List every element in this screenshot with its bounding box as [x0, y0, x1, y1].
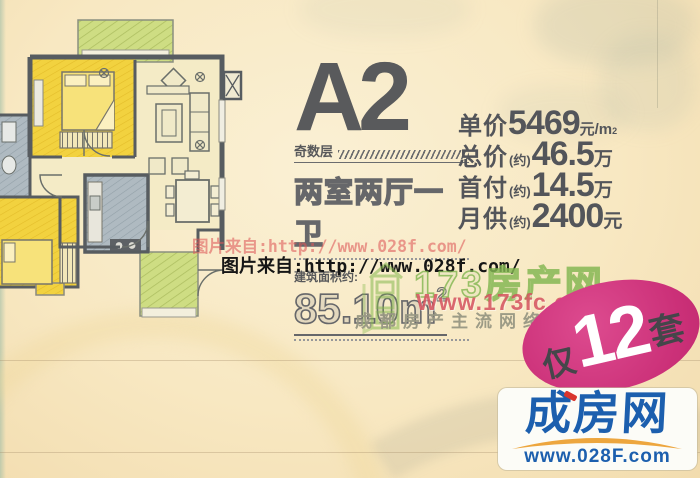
- unit-name: A2: [294, 56, 469, 137]
- counter: [88, 182, 102, 242]
- price-unit-sup: 2: [612, 126, 617, 136]
- floor-plan: [0, 0, 280, 335]
- price-approx: (约): [508, 181, 532, 200]
- crease-line: [657, 0, 658, 108]
- price-approx: (约): [508, 150, 532, 169]
- footer-logo-url: www.028F.com: [498, 446, 697, 468]
- ac-unit: [224, 72, 241, 99]
- window: [34, 80, 43, 126]
- hatch-bar: [338, 150, 469, 159]
- sink: [90, 196, 100, 210]
- stool: [149, 158, 165, 174]
- floor-note: 奇数层: [294, 141, 333, 160]
- balcony-bottom: [140, 252, 198, 317]
- footer-logo-name: 成房网: [497, 388, 699, 439]
- bedroom-1: [30, 57, 135, 157]
- bathroom: [0, 115, 30, 197]
- price-label: 月供: [458, 199, 508, 234]
- window: [219, 100, 225, 142]
- bleedthrough-blob: [300, 0, 470, 37]
- price-approx: (约): [508, 212, 532, 231]
- sofa-back: [147, 86, 189, 94]
- price-row-unit: 单价 5469 元/m 2: [458, 104, 622, 135]
- price-row-total: 总价 (约) 46.5 万: [458, 135, 622, 166]
- price-suffix: 元: [603, 206, 622, 233]
- price-value: 2400: [532, 197, 604, 236]
- footer-logo-card: 成房网 www.028F.com: [498, 388, 697, 470]
- price-suffix: 万: [594, 144, 613, 171]
- advert-page: A2 奇数层 两室两厅一卫 建筑面积约: 85.10m2 单价 5469 元/m…: [0, 0, 700, 478]
- pricing-block: 单价 5469 元/m 2 总价 (约) 46.5 万 首付 (约) 14.5 …: [458, 104, 622, 228]
- sofa: [190, 93, 209, 151]
- dotted-rule: [294, 339, 469, 341]
- dining-table: [176, 180, 209, 222]
- window: [219, 178, 225, 210]
- price-row-monthly: 月供 (约) 2400 元: [458, 197, 622, 228]
- wardrobe: [60, 243, 76, 283]
- price-label: 总价: [458, 137, 508, 172]
- price-label: 首付: [458, 168, 508, 203]
- price-label: 单价: [458, 106, 508, 141]
